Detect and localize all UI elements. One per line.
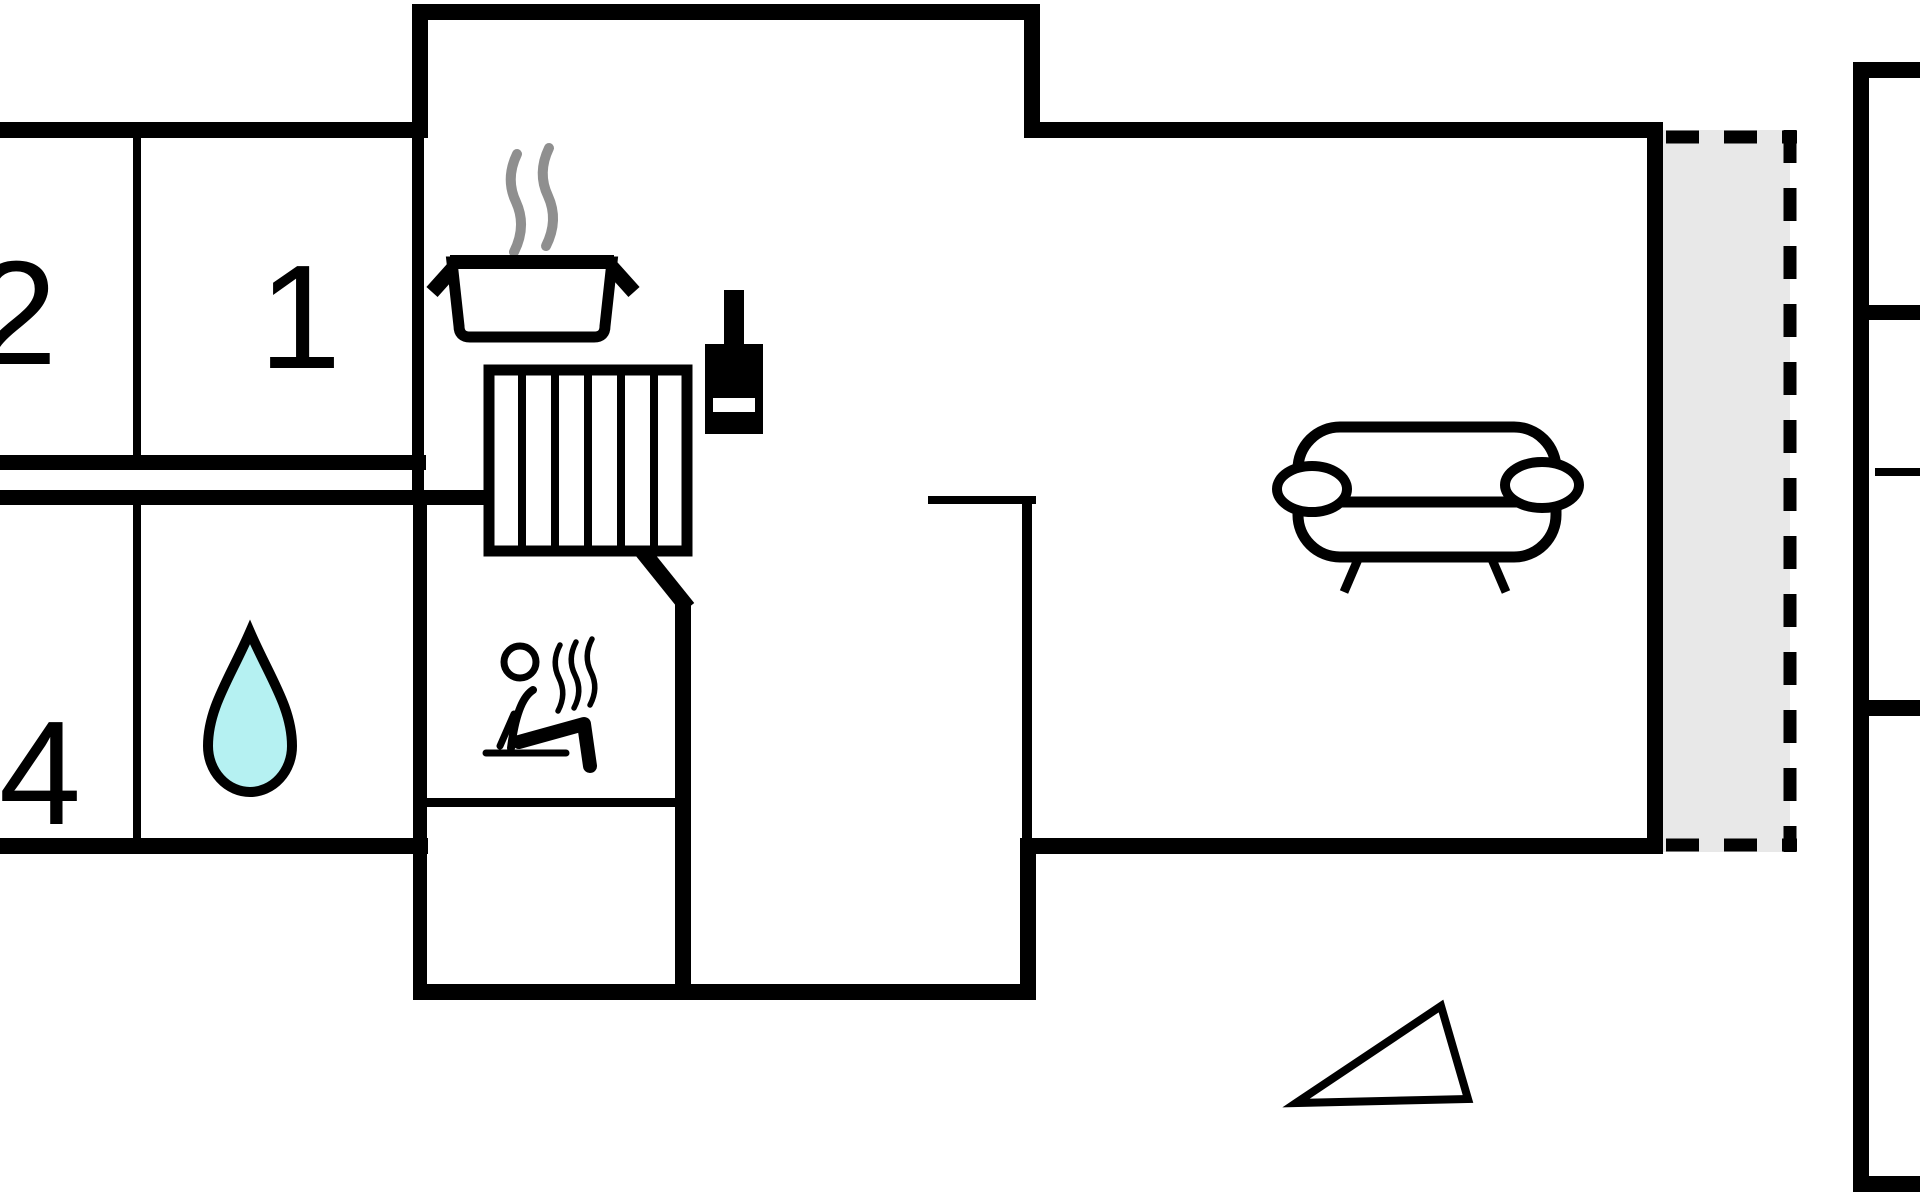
wall — [928, 496, 1036, 504]
room-1-label: 1 — [259, 235, 341, 400]
wall — [1024, 4, 1040, 138]
wall — [1869, 305, 1920, 320]
terrace-area — [1663, 130, 1797, 852]
sofa-icon — [1277, 427, 1579, 592]
wall — [427, 798, 677, 807]
wall — [1869, 700, 1920, 716]
wall — [413, 984, 1036, 1000]
steam-icon — [511, 148, 553, 252]
wall — [1853, 62, 1869, 1192]
floor-plan-canvas: 2 1 4 — [0, 0, 1920, 1200]
wall — [412, 4, 1040, 20]
wall — [675, 600, 691, 1000]
wall — [1020, 838, 1036, 1000]
wall — [1869, 62, 1920, 78]
wall — [133, 505, 141, 838]
wall — [412, 138, 424, 498]
wall — [0, 455, 426, 470]
wall — [1024, 122, 1663, 138]
wood-stove-icon — [705, 290, 763, 434]
wall — [1020, 838, 1663, 854]
wall — [413, 505, 427, 1000]
wall — [1875, 468, 1920, 476]
wall — [412, 4, 428, 138]
wall — [0, 122, 428, 138]
room-2-label: 2 — [0, 231, 57, 396]
cooking-pot-icon — [432, 262, 634, 337]
terrace-fill — [1663, 130, 1790, 852]
wall — [1647, 122, 1663, 854]
north-arrow-icon — [1296, 1006, 1468, 1103]
walls — [0, 4, 1920, 1192]
room-4-label: 4 — [0, 691, 81, 856]
stairs-icon — [489, 370, 687, 551]
sauna-person-icon — [486, 639, 595, 766]
heat-waves-icon — [555, 639, 595, 711]
wall — [133, 138, 141, 460]
wall — [1022, 504, 1032, 838]
water-drop-icon — [208, 632, 292, 792]
wall — [1869, 1176, 1920, 1192]
